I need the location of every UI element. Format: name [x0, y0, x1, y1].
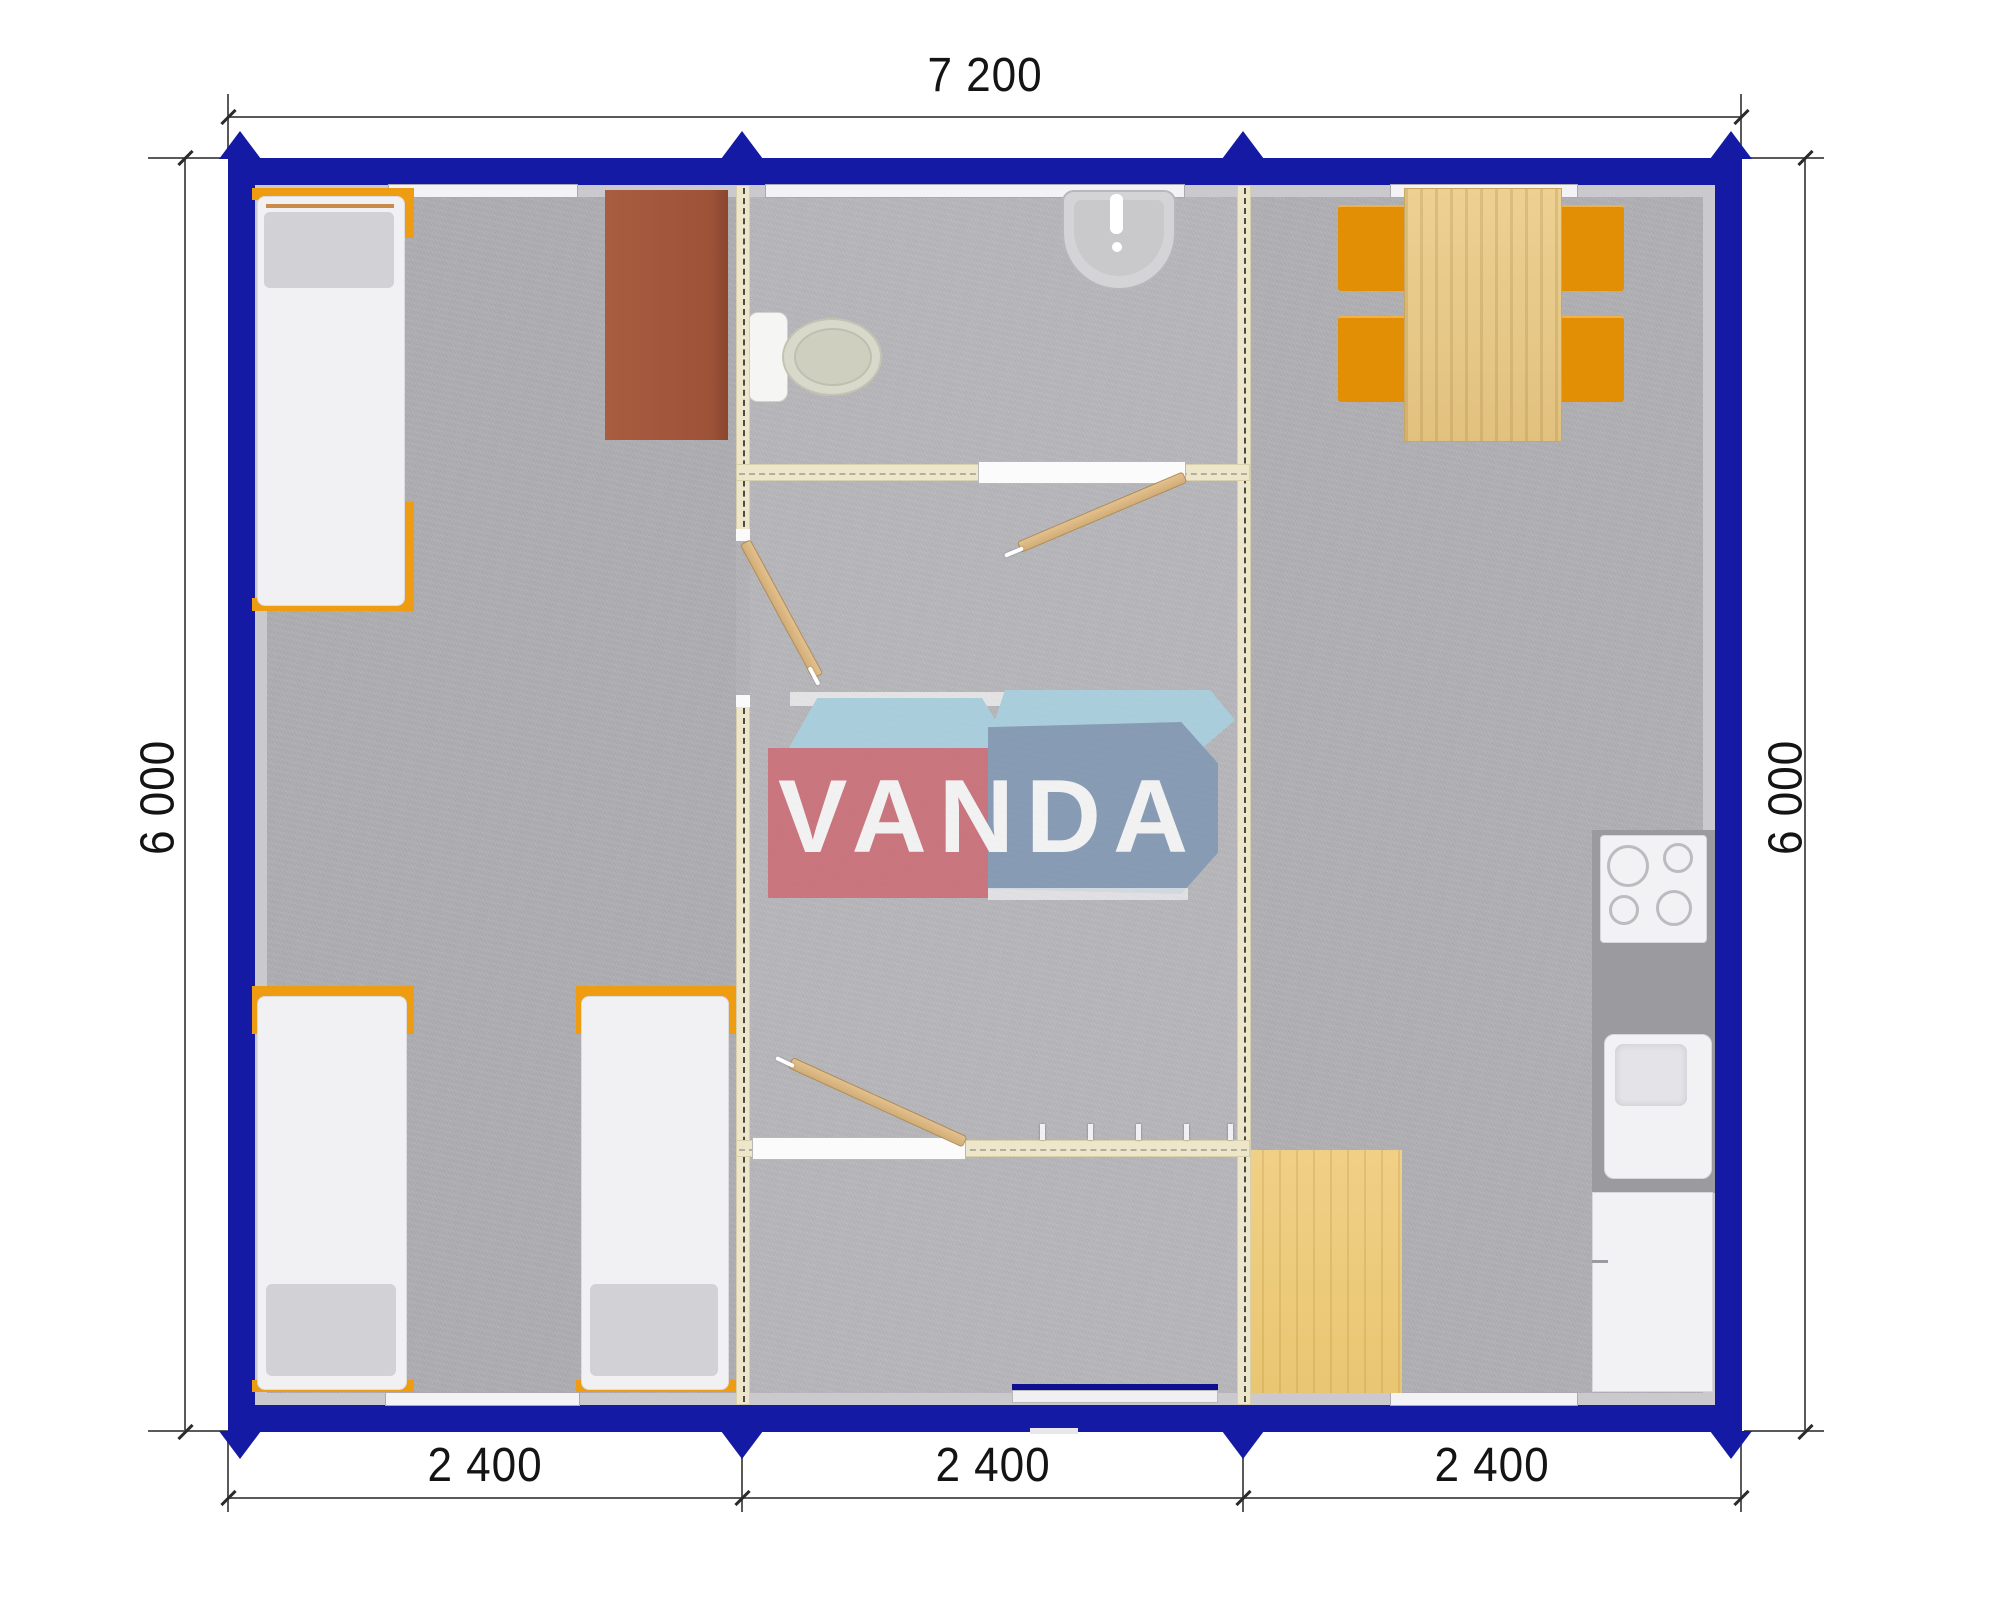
vanda-logo: VANDA — [768, 690, 1233, 902]
burner — [1656, 890, 1692, 926]
module-joint-marker — [1222, 1431, 1264, 1459]
logo-text: VANDA — [778, 742, 1198, 892]
hall-door-opening — [752, 1137, 966, 1160]
partition-left-lower — [736, 695, 750, 1405]
dimension-line-top — [228, 116, 1742, 118]
dimension-label-bottom-left: 2 400 — [393, 1438, 577, 1493]
chair — [1556, 205, 1624, 291]
burner — [1609, 895, 1639, 925]
coat-hook — [1136, 1124, 1141, 1140]
kitchen-sink-basin — [1615, 1044, 1687, 1106]
desk — [605, 190, 728, 440]
dimension-label-top: 7 200 — [893, 48, 1077, 103]
chair — [1338, 205, 1410, 291]
dimension-line-bottom — [228, 1497, 1742, 1499]
module-joint-marker — [721, 131, 763, 159]
bed-headboard-edge — [266, 204, 394, 208]
partition-right — [1237, 185, 1251, 1405]
coat-hook — [1040, 1124, 1045, 1140]
module-joint-marker — [219, 1431, 261, 1459]
module-joint-marker — [1710, 1431, 1752, 1459]
fridge — [1592, 1192, 1713, 1392]
fridge-handle — [1592, 1260, 1608, 1263]
extension-line — [1744, 1430, 1824, 1432]
coat-hook — [1184, 1124, 1189, 1140]
dining-table — [1404, 188, 1562, 442]
dimension-line-left — [184, 158, 186, 1432]
burner — [1607, 845, 1649, 887]
module-joint-marker — [1710, 131, 1752, 159]
module-joint-marker — [219, 131, 261, 159]
coat-hook — [1228, 1124, 1233, 1140]
window — [1390, 1392, 1578, 1406]
faucet-knob — [1112, 242, 1122, 252]
bathroom-door-opening — [978, 461, 1186, 484]
entrance-step — [1030, 1428, 1078, 1434]
bed-pillow — [264, 212, 394, 288]
window — [385, 1392, 580, 1406]
dimension-label-bottom-middle: 2 400 — [901, 1438, 1085, 1493]
dimension-label-bottom-right: 2 400 — [1400, 1438, 1584, 1493]
module-joint-marker — [1222, 131, 1264, 159]
extension-line — [148, 157, 230, 159]
bed-pillow — [590, 1284, 718, 1376]
floor-plan-canvas: 7 200 6 000 6 000 2 400 2 400 2 400 — [0, 0, 2000, 1597]
dimension-label-left: 6 000 — [131, 706, 186, 890]
bed-pillow — [266, 1284, 396, 1376]
partition-left-upper — [736, 185, 750, 540]
chair — [1556, 316, 1624, 402]
module-joint-marker — [721, 1431, 763, 1459]
extension-line — [1744, 157, 1824, 159]
toilet-seat — [794, 328, 872, 386]
door-jamb — [736, 695, 750, 707]
burner — [1663, 843, 1693, 873]
entry-wood-floor — [1245, 1150, 1402, 1393]
chair — [1338, 316, 1410, 402]
window — [388, 184, 578, 198]
dimension-line-right — [1804, 158, 1806, 1432]
coat-hook — [1088, 1124, 1093, 1140]
entrance-door-threshold — [1012, 1390, 1218, 1403]
faucet — [1110, 194, 1123, 234]
